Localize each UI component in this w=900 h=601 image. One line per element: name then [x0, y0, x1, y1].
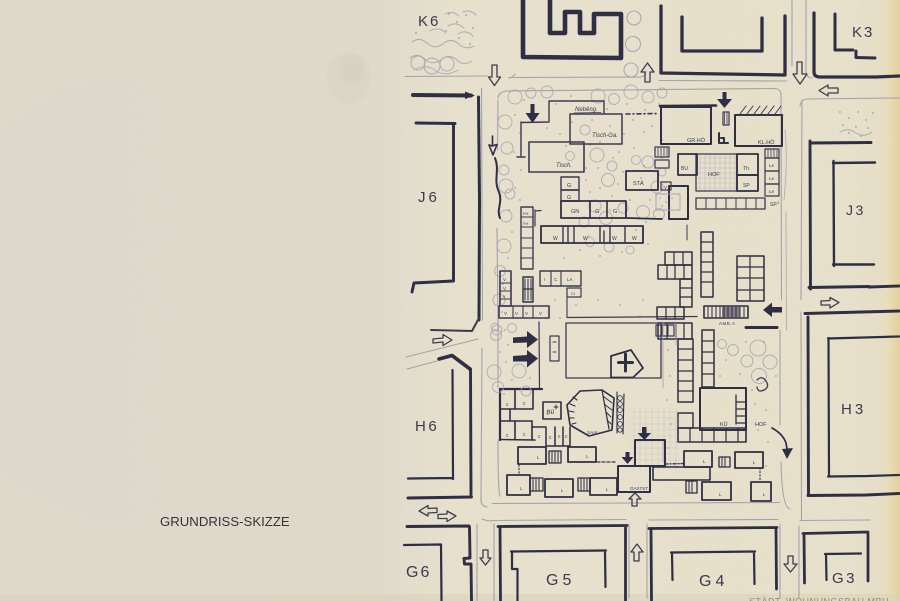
svg-text:Nebeng.: Nebeng. — [575, 107, 598, 113]
svg-text:SP: SP — [743, 183, 750, 189]
svg-text:K3: K3 — [852, 24, 874, 41]
svg-text:G: G — [567, 183, 571, 189]
svg-text:HOF: HOF — [755, 422, 767, 428]
svg-text:H3: H3 — [841, 401, 866, 418]
svg-text:G4: G4 — [699, 573, 728, 590]
svg-text:KÜ: KÜ — [720, 421, 728, 428]
svg-text:CI: CI — [571, 291, 575, 296]
svg-text:J6: J6 — [418, 189, 440, 206]
svg-text:V: V — [525, 311, 528, 316]
svg-text:G6: G6 — [406, 564, 431, 581]
svg-text:FH: FH — [523, 211, 528, 216]
svg-text:STÄDT. WOHNUNGSBAU MBH: STÄDT. WOHNUNGSBAU MBH — [749, 597, 889, 601]
svg-text:FH: FH — [523, 221, 528, 226]
svg-text:LA: LA — [567, 277, 573, 282]
svg-text:G: G — [613, 209, 617, 215]
svg-text:V: V — [503, 286, 506, 291]
svg-text:Th: Th — [743, 166, 749, 172]
svg-text:AMB.A: AMB.A — [719, 321, 736, 326]
svg-text:STÄ: STÄ — [633, 180, 644, 187]
svg-text:V: V — [503, 277, 506, 282]
svg-text:V: V — [539, 311, 542, 316]
svg-text:W: W — [583, 236, 588, 242]
svg-text:GRUNDRISS-SKIZZE: GRUNDRISS-SKIZZE — [160, 514, 290, 529]
svg-text:HOF: HOF — [708, 172, 720, 178]
svg-text:KL.HÖ: KL.HÖ — [758, 139, 775, 146]
svg-text:SAAL: SAAL — [587, 430, 599, 435]
svg-text:Bü: Bü — [546, 408, 555, 416]
svg-text:Le: Le — [769, 176, 775, 181]
svg-text:W: W — [632, 236, 637, 242]
svg-text:V: V — [504, 311, 507, 316]
svg-text:J3: J3 — [846, 202, 866, 218]
svg-text:W: W — [553, 236, 558, 242]
svg-text:I: I — [544, 277, 545, 282]
svg-text:V: V — [664, 185, 667, 190]
svg-text:BU: BU — [681, 166, 688, 172]
svg-text:Tisch.: Tisch. — [556, 163, 572, 169]
svg-text:Le: Le — [769, 189, 775, 194]
svg-text:K6: K6 — [418, 13, 440, 30]
svg-text:G3: G3 — [832, 570, 857, 587]
svg-text:GN: GN — [571, 209, 579, 215]
svg-text:G: G — [595, 209, 599, 215]
svg-text:GASTST.: GASTST. — [630, 486, 649, 491]
svg-text:G5: G5 — [546, 572, 575, 589]
svg-text:H6: H6 — [415, 418, 439, 435]
svg-text:GR.HÖ: GR.HÖ — [687, 137, 706, 144]
svg-text:V: V — [515, 311, 518, 316]
svg-text:Tisch-Ga.: Tisch-Ga. — [592, 133, 618, 139]
svg-text:Le: Le — [769, 163, 775, 168]
svg-text:W: W — [612, 236, 617, 242]
